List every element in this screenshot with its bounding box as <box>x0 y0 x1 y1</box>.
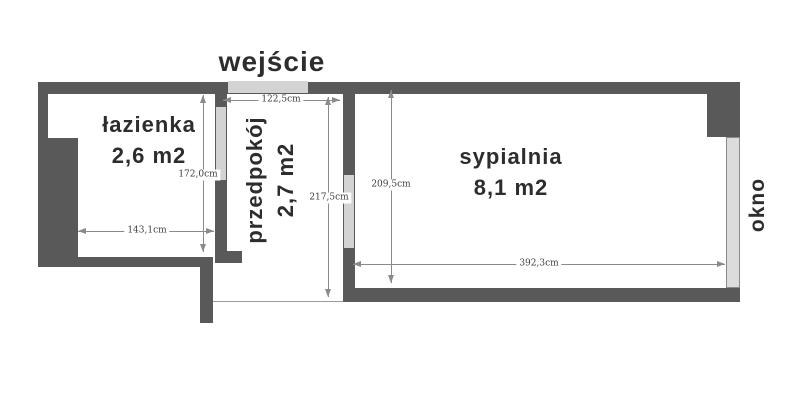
dim-label-bathroom-height: 172,0cm <box>175 170 220 181</box>
bedroom-door <box>344 175 354 248</box>
bathroom-name: łazienka <box>102 109 196 140</box>
window-label-text: okno <box>746 178 769 232</box>
dim-label-bedroom-width: 392,3cm <box>516 259 561 270</box>
wall-left-upper <box>38 82 48 142</box>
floor-plan: wejście łazienka 2,6 m2 przedpokój 2,7 m… <box>0 0 795 400</box>
wall-bedroom-bottom <box>343 288 740 302</box>
bedroom-area: 8,1 m2 <box>459 172 562 203</box>
bathroom-label: łazienka 2,6 m2 <box>102 109 196 171</box>
hallway-area: 2,7 m2 <box>270 50 301 310</box>
window-right <box>726 137 740 288</box>
bedroom-label: sypialnia 8,1 m2 <box>459 141 562 203</box>
dim-label-bedroom-height: 209,5cm <box>368 180 413 191</box>
bathroom-area: 2,6 m2 <box>102 140 196 171</box>
wall-bathroom-bottom <box>38 257 213 267</box>
dim-label-entrance-width: 122,5cm <box>258 95 303 106</box>
wall-stub-below-bathroom <box>200 257 213 323</box>
hallway-name: przedpokój <box>239 50 270 310</box>
wall-block-top-right <box>707 82 740 137</box>
window-label: okno <box>746 178 770 232</box>
dim-label-hallway-height: 217,5cm <box>306 193 351 204</box>
wall-hallway-foot <box>215 251 242 263</box>
bedroom-name: sypialnia <box>459 141 562 172</box>
hallway-label: przedpokój 2,7 m2 <box>239 50 301 310</box>
dim-label-bathroom-width: 143,1cm <box>124 226 169 237</box>
wall-left-lower <box>38 138 78 267</box>
